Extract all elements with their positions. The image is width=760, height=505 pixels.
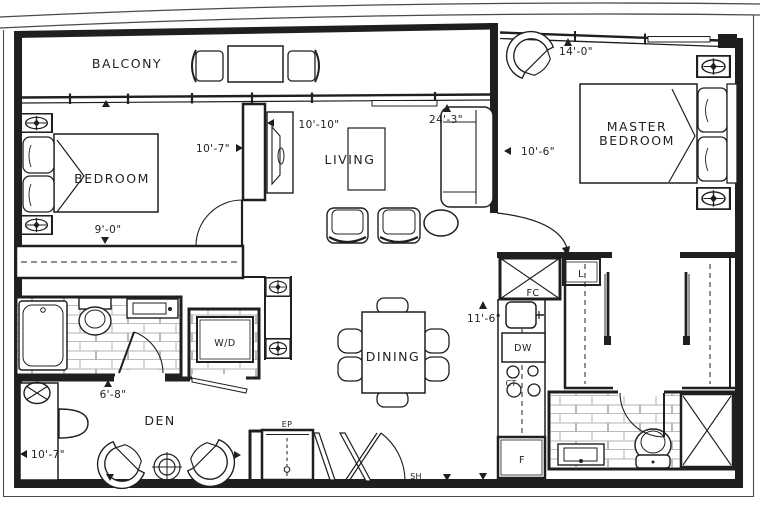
- shower: [681, 394, 733, 467]
- floor-plan-drawing: W/D: [0, 0, 760, 505]
- headboard: [727, 84, 737, 183]
- side-table: [424, 210, 458, 236]
- balcony-sliding-door: [372, 101, 437, 107]
- cooktop: CT: [505, 366, 540, 397]
- dining-chair: [338, 357, 364, 381]
- fan-coil-unit: FC: [500, 258, 560, 299]
- living-label: LIVING: [325, 152, 376, 167]
- balcony-label: BALCONY: [92, 56, 162, 71]
- dim-text: 10'-10": [298, 119, 339, 131]
- dim-text: 10'-7": [196, 143, 230, 155]
- laundry-closet: W/D: [189, 309, 259, 393]
- dim-text: 10'-7": [31, 449, 65, 461]
- dining-label: DINING: [366, 349, 420, 364]
- den-ceiling-light-icon: [152, 452, 182, 482]
- den-label: DEN: [144, 413, 175, 428]
- dim-text: 24'-3": [429, 114, 463, 126]
- master-closets: L: [563, 258, 736, 389]
- fridge: F: [498, 437, 545, 478]
- living-furniture: [327, 107, 493, 243]
- master-sliding-window: [648, 37, 710, 43]
- master-label-line2: BEDROOM: [599, 133, 675, 148]
- balcony-table: [228, 46, 283, 82]
- dim-arrow: [479, 301, 487, 309]
- bathroom-ensuite: [549, 388, 735, 469]
- toilet: [79, 298, 111, 335]
- bedroom-label: BEDROOM: [74, 171, 150, 186]
- floor-plan-page: W/D: [0, 0, 760, 505]
- closet-door-panel: [340, 433, 371, 481]
- master-label-line1: MASTER: [607, 119, 668, 134]
- corner-chair: [497, 22, 562, 87]
- cooktop-label: CT: [505, 379, 516, 388]
- living-chair: [327, 208, 368, 243]
- dishwasher-label: DW: [514, 343, 532, 354]
- tv-icon: [272, 127, 280, 184]
- den-chair: [88, 434, 153, 499]
- desk-chair: [59, 409, 88, 438]
- vanity-sink: [558, 444, 604, 465]
- electrical-panel-label: EP: [282, 420, 292, 429]
- master-pillow: [698, 137, 727, 181]
- vanity-sink: [127, 299, 178, 318]
- dim-arrow: [102, 100, 110, 107]
- bedroom-closet: [16, 246, 243, 278]
- dim-arrow: [479, 473, 487, 480]
- bedroom-pillow: [23, 137, 54, 173]
- washer-dryer-label: W/D: [214, 338, 235, 349]
- ceiling-light-icon: [21, 114, 52, 132]
- dining-chair: [338, 329, 364, 353]
- dining-chair: [423, 329, 449, 353]
- ceiling-light-icon: [21, 216, 52, 234]
- dim-arrow: [101, 237, 109, 244]
- balcony-furniture: [192, 46, 319, 82]
- balcony-chair-right: [288, 51, 315, 81]
- dishwasher: DW: [502, 333, 545, 362]
- dim-master-depth: 10'-6": [504, 146, 555, 158]
- tv-partition: [243, 104, 293, 200]
- bedroom-pillow: [23, 176, 54, 212]
- dim-arrow: [234, 451, 241, 459]
- dim-text: 6'-8": [100, 389, 127, 401]
- dim-kitchen-length: 11'-6": [467, 301, 501, 480]
- dining-chair: [423, 357, 449, 381]
- balcony-chair-left: [196, 51, 223, 81]
- ceiling-light-icon: [266, 278, 290, 296]
- kitchen-sink: [506, 302, 544, 328]
- bedroom-door: [196, 200, 242, 246]
- ceiling-light-icon: [697, 188, 730, 209]
- dim-text: 14'-0": [559, 46, 593, 58]
- fan-coil-label: FC: [526, 288, 539, 299]
- entry: [262, 430, 405, 481]
- shelf-label: SH: [410, 472, 422, 481]
- dim-text: 9'-0": [95, 224, 122, 236]
- living-chair: [378, 208, 420, 243]
- fridge-label: F: [519, 455, 525, 466]
- dim-arrow: [564, 38, 572, 46]
- dim-bedroom-depth: 10'-7": [196, 143, 243, 155]
- ceiling-light-icon: [266, 339, 290, 358]
- dim-text: 11'-6": [467, 313, 501, 325]
- master-door: [497, 213, 570, 257]
- kitchen: FC DW CT F: [498, 258, 560, 479]
- bathroom-main: [16, 297, 181, 378]
- linen-label: L: [578, 269, 584, 280]
- ceiling-light-icon: [697, 56, 730, 77]
- master-pillow: [698, 88, 727, 132]
- bathtub-inner: [23, 305, 63, 366]
- dim-text: 10'-6": [521, 146, 555, 158]
- linen-closet: L: [563, 259, 600, 285]
- dim-arrow: [504, 147, 511, 155]
- toilet: [635, 429, 671, 468]
- closet-door-panel: [314, 433, 335, 480]
- entry-door: [345, 433, 377, 481]
